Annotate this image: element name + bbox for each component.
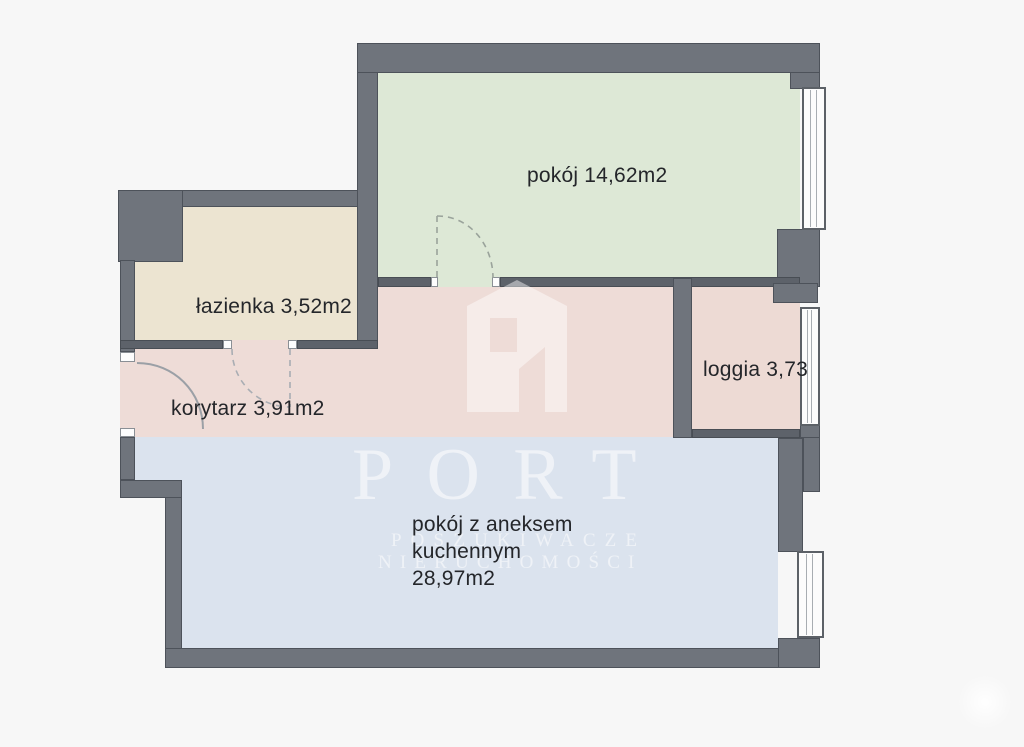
wall (773, 283, 818, 303)
door-gap-fill (120, 362, 135, 428)
window-pane-line (816, 90, 817, 227)
wall (120, 437, 135, 480)
wall (120, 340, 223, 349)
wall (165, 648, 820, 668)
wall (357, 72, 378, 348)
room-label-aneks-line1: pokój z aneksem (412, 511, 573, 538)
room-korytarz-floor (135, 348, 378, 437)
wall (165, 497, 182, 649)
room-label-korytarz: korytarz 3,91m2 (171, 397, 325, 421)
room-korytarz-floor (378, 285, 673, 437)
room-label-lazienka: łazienka 3,52m2 (196, 295, 352, 319)
wall-cap (223, 340, 232, 349)
floor-plan-canvas: PORT POSZUKIWACZE NIERUCHOMOŚCI pokój 14… (0, 0, 1024, 747)
door-gap-fill (232, 340, 288, 349)
wall (692, 429, 800, 438)
room-label-aneks: pokój z aneksem kuchennym 28,97m2 (412, 511, 573, 592)
wall-cap (492, 277, 500, 287)
door-gap-fill (437, 277, 493, 287)
sparkle-artifact (955, 672, 1015, 732)
room-loggia-floor (692, 283, 800, 429)
window-aneks (797, 551, 824, 638)
wall (803, 430, 820, 492)
wall (378, 277, 431, 287)
room-label-aneks-line2: kuchennym (412, 538, 573, 565)
wall (357, 43, 820, 73)
wall (778, 638, 820, 668)
wall-cap (288, 340, 297, 349)
wall (118, 190, 183, 262)
wall-cap (120, 428, 135, 437)
room-label-loggia: loggia 3,73 (703, 358, 808, 382)
window-pane-line (812, 554, 813, 635)
wall (297, 340, 378, 349)
wall (778, 438, 803, 552)
room-label-aneks-line3: 28,97m2 (412, 565, 573, 592)
wall-cap (431, 277, 438, 287)
window-pane-line (811, 310, 812, 423)
wall-cap (120, 352, 135, 362)
room-label-pokoj: pokój 14,62m2 (527, 164, 667, 188)
wall (673, 278, 692, 438)
window-pane-line (810, 90, 811, 227)
wall (500, 277, 800, 287)
watermark-brand: PORT (352, 438, 670, 512)
wall (120, 260, 135, 352)
window-pokoj (802, 87, 826, 230)
wall (120, 480, 182, 498)
room-lazienka-floor (183, 207, 357, 262)
window-pane-line (806, 554, 807, 635)
